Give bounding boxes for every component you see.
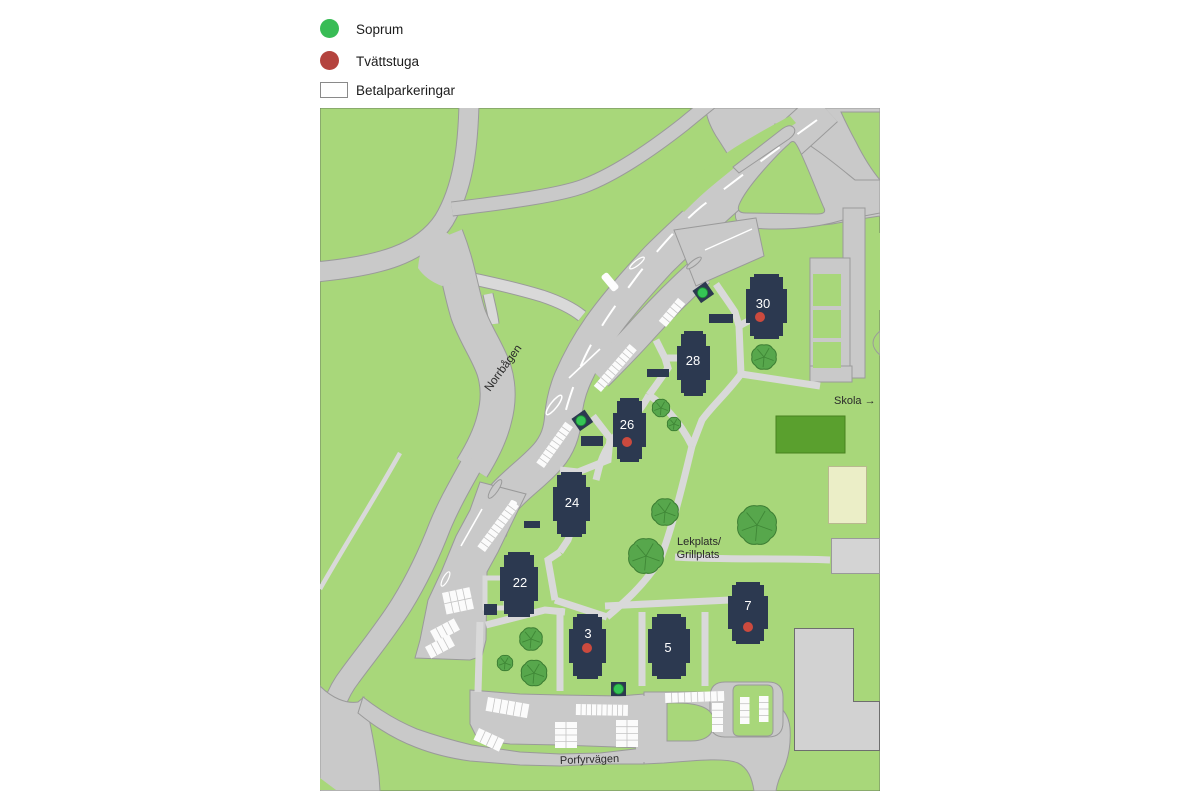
svg-text:28: 28 xyxy=(686,353,700,368)
svg-text:Porfyrvägen: Porfyrvägen xyxy=(560,753,620,767)
svg-text:30: 30 xyxy=(756,296,770,311)
svg-text:5: 5 xyxy=(664,640,671,655)
svg-text:Grillplats: Grillplats xyxy=(677,549,720,561)
svg-text:24: 24 xyxy=(565,495,579,510)
svg-text:Lekplats/: Lekplats/ xyxy=(677,536,722,548)
svg-text:Skola →: Skola → xyxy=(834,395,876,407)
svg-text:7: 7 xyxy=(744,598,751,613)
svg-text:22: 22 xyxy=(513,575,527,590)
svg-text:26: 26 xyxy=(620,417,634,432)
svg-text:3: 3 xyxy=(584,626,591,641)
